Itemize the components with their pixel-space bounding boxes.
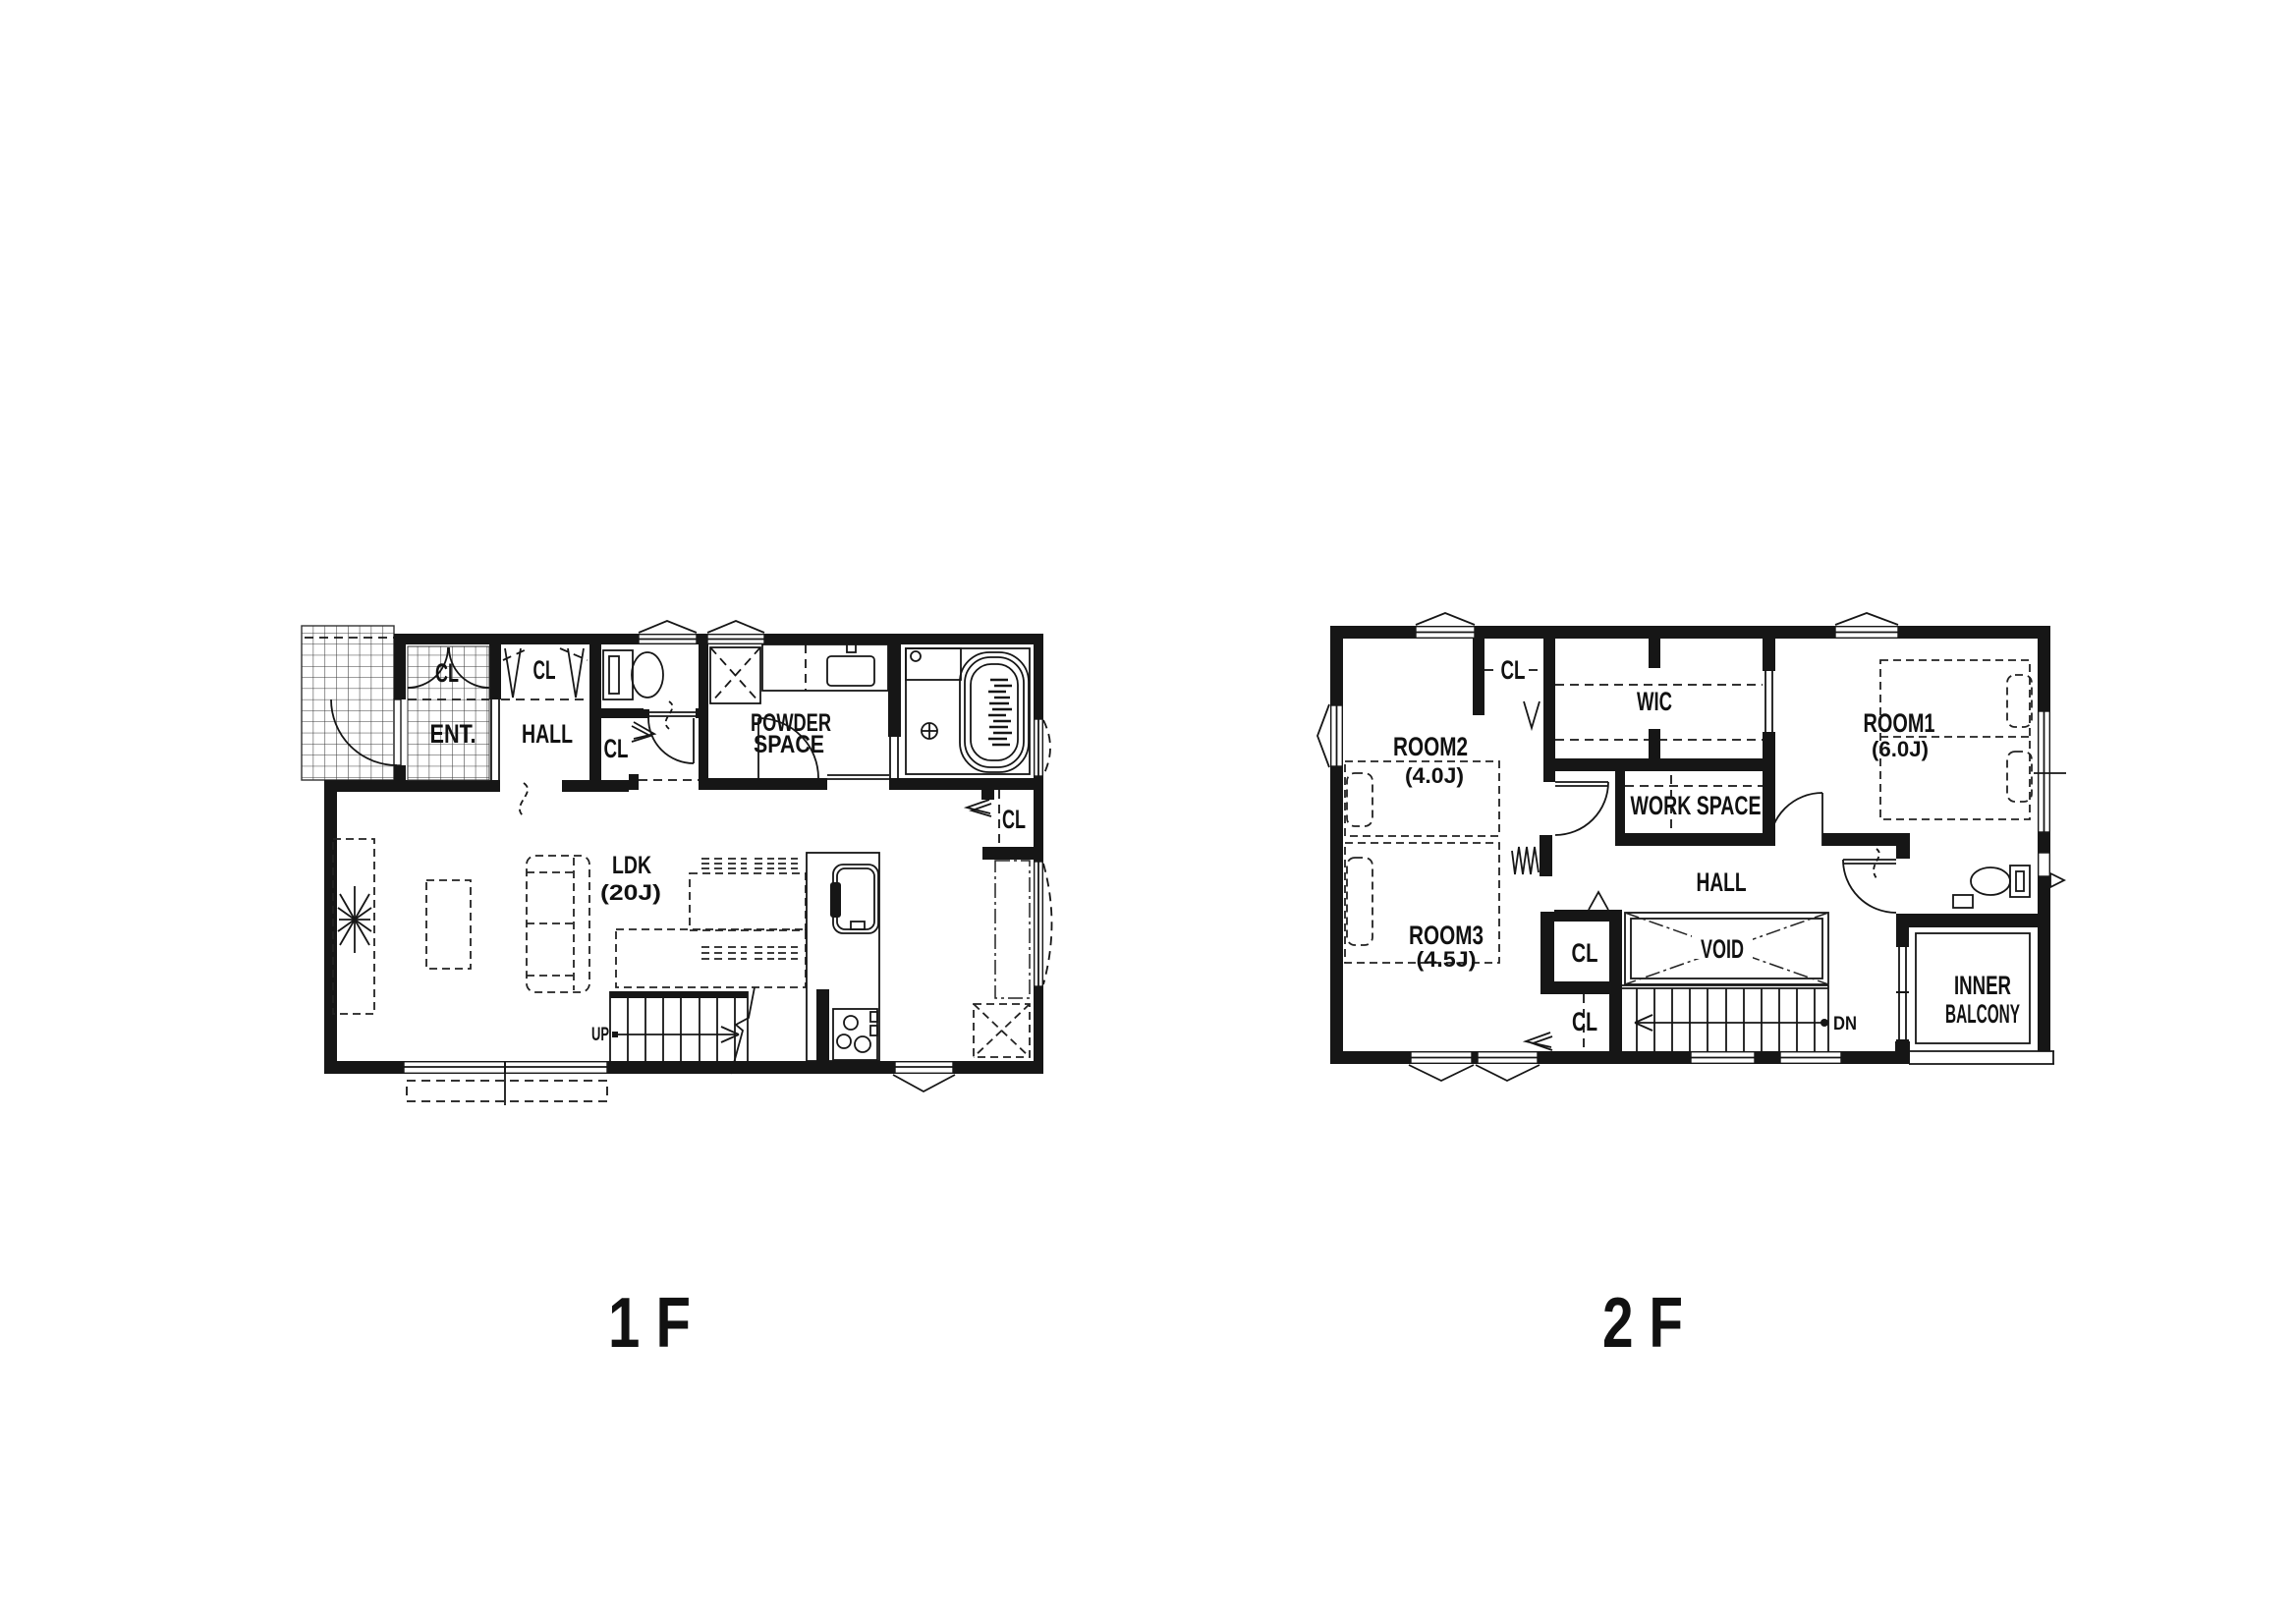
svg-text:2 F: 2 F [1602, 1284, 1683, 1363]
svg-text:(20J): (20J) [600, 880, 661, 905]
svg-text:VOID: VOID [1701, 934, 1744, 964]
svg-text:CL: CL [533, 655, 556, 685]
svg-text:CL: CL [1572, 1007, 1597, 1036]
svg-text:ROOM3: ROOM3 [1409, 921, 1484, 950]
svg-text:1 F: 1 F [608, 1284, 691, 1363]
svg-text:INNER: INNER [1954, 971, 2011, 1000]
svg-text:ROOM1: ROOM1 [1864, 708, 1935, 738]
svg-text:ROOM2: ROOM2 [1393, 732, 1468, 761]
svg-text:WIC: WIC [1637, 687, 1672, 716]
svg-text:(4.0J): (4.0J) [1405, 763, 1464, 788]
svg-text:WORK SPACE: WORK SPACE [1631, 791, 1762, 820]
svg-text:LDK: LDK [612, 852, 651, 879]
svg-text:CL: CL [604, 734, 629, 763]
svg-text:BALCONY: BALCONY [1945, 999, 2020, 1029]
svg-text:ENT.: ENT. [430, 719, 476, 749]
svg-text:CL: CL [1002, 805, 1026, 834]
svg-text:CL: CL [1501, 655, 1526, 685]
svg-text:(4.5J): (4.5J) [1417, 947, 1477, 972]
svg-text:HALL: HALL [522, 719, 573, 749]
svg-text:UP: UP [591, 1025, 609, 1045]
svg-text:DN: DN [1833, 1014, 1857, 1034]
svg-text:CL: CL [1572, 938, 1598, 968]
svg-text:CL: CL [435, 658, 459, 688]
svg-text:HALL: HALL [1697, 867, 1747, 897]
